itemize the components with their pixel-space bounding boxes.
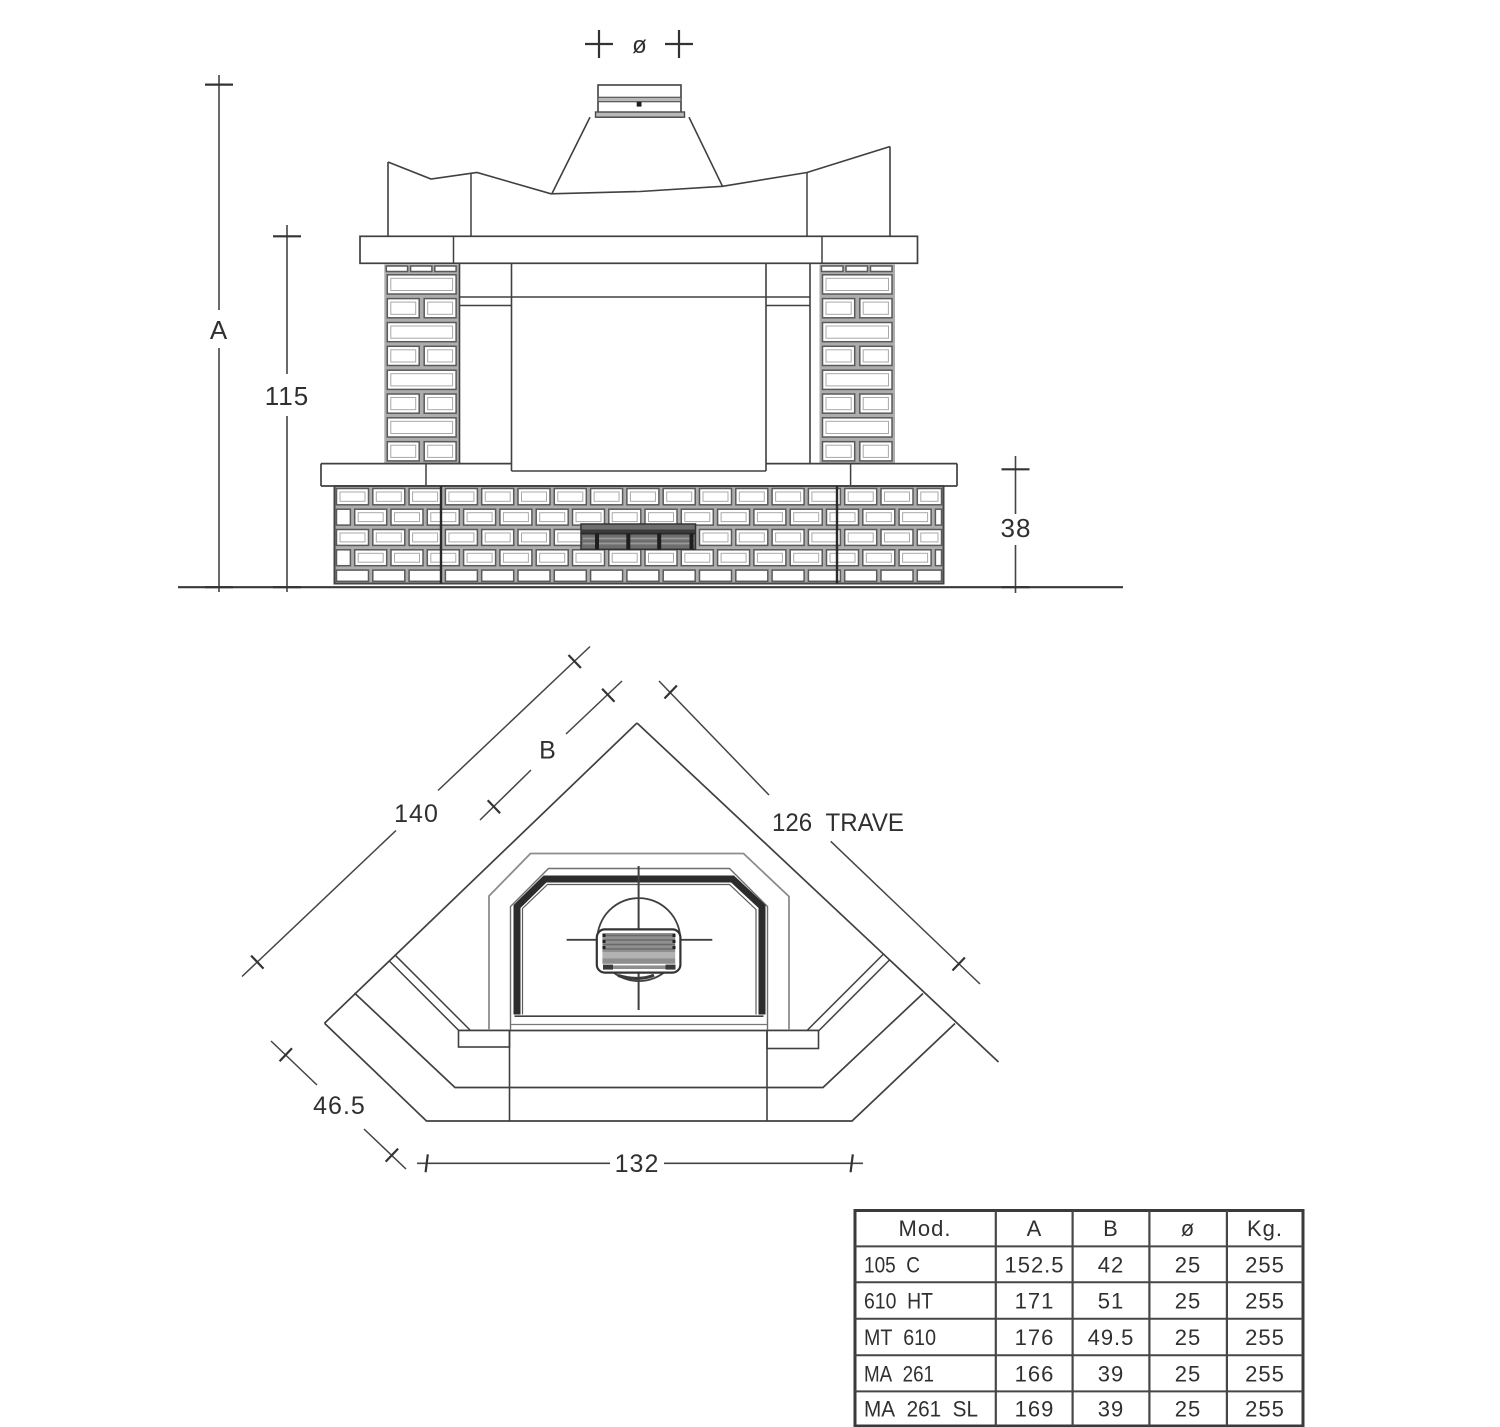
- svg-text:ø: ø: [632, 32, 648, 59]
- svg-text:255: 255: [1245, 1325, 1285, 1350]
- svg-text:25: 25: [1175, 1361, 1201, 1386]
- svg-text:46.5: 46.5: [313, 1092, 366, 1120]
- svg-text:B: B: [1103, 1216, 1119, 1241]
- svg-text:MA 261 SL: MA 261 SL: [864, 1397, 978, 1422]
- svg-text:B: B: [539, 737, 557, 765]
- svg-text:152.5: 152.5: [1004, 1252, 1064, 1277]
- svg-text:39: 39: [1098, 1397, 1124, 1422]
- svg-text:A: A: [210, 315, 228, 345]
- svg-text:38: 38: [1001, 513, 1032, 543]
- svg-text:126 TRAVE: 126 TRAVE: [772, 809, 904, 837]
- svg-text:140: 140: [394, 800, 439, 828]
- svg-text:42: 42: [1098, 1252, 1124, 1277]
- svg-text:25: 25: [1175, 1252, 1201, 1277]
- svg-text:176: 176: [1015, 1325, 1055, 1350]
- svg-text:39: 39: [1098, 1361, 1124, 1386]
- svg-text:Mod.: Mod.: [899, 1216, 952, 1241]
- svg-text:ø: ø: [1181, 1216, 1195, 1241]
- svg-text:610 HT: 610 HT: [864, 1289, 933, 1314]
- svg-text:169: 169: [1015, 1397, 1055, 1422]
- svg-text:105 C: 105 C: [864, 1252, 920, 1277]
- svg-text:255: 255: [1245, 1397, 1285, 1422]
- svg-text:A: A: [1027, 1216, 1043, 1241]
- svg-text:MT 610: MT 610: [864, 1325, 936, 1350]
- svg-text:166: 166: [1015, 1361, 1055, 1386]
- svg-text:49.5: 49.5: [1088, 1325, 1135, 1350]
- svg-text:255: 255: [1245, 1289, 1285, 1314]
- svg-text:Kg.: Kg.: [1247, 1216, 1283, 1241]
- svg-text:255: 255: [1245, 1252, 1285, 1277]
- svg-text:171: 171: [1015, 1289, 1055, 1314]
- svg-text:115: 115: [265, 381, 309, 411]
- svg-text:MA 261: MA 261: [864, 1361, 934, 1386]
- svg-text:25: 25: [1175, 1325, 1201, 1350]
- svg-text:51: 51: [1098, 1289, 1124, 1314]
- svg-text:25: 25: [1175, 1397, 1201, 1422]
- svg-text:25: 25: [1175, 1289, 1201, 1314]
- svg-text:255: 255: [1245, 1361, 1285, 1386]
- svg-text:132: 132: [615, 1150, 660, 1178]
